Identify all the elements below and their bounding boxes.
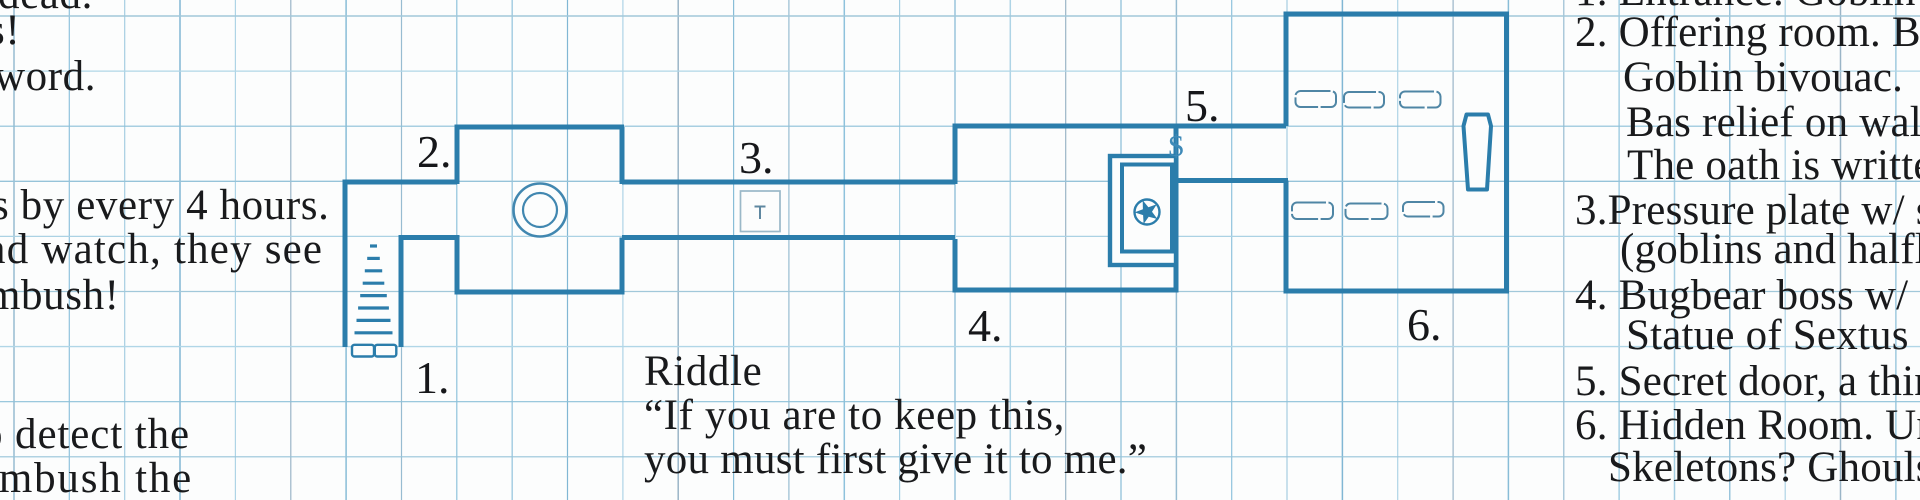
svg-text:$: $ (1168, 128, 1184, 163)
